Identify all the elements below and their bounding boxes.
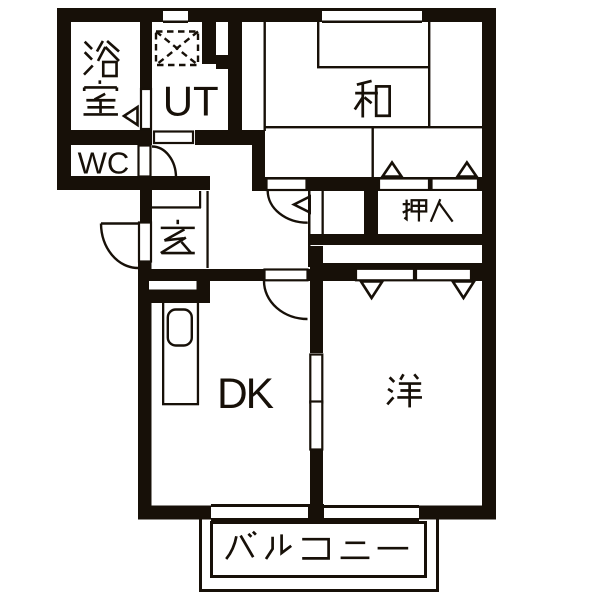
svg-text:DK: DK <box>217 371 274 418</box>
svg-text:WC: WC <box>78 146 130 181</box>
svg-text:UT: UT <box>163 77 219 124</box>
